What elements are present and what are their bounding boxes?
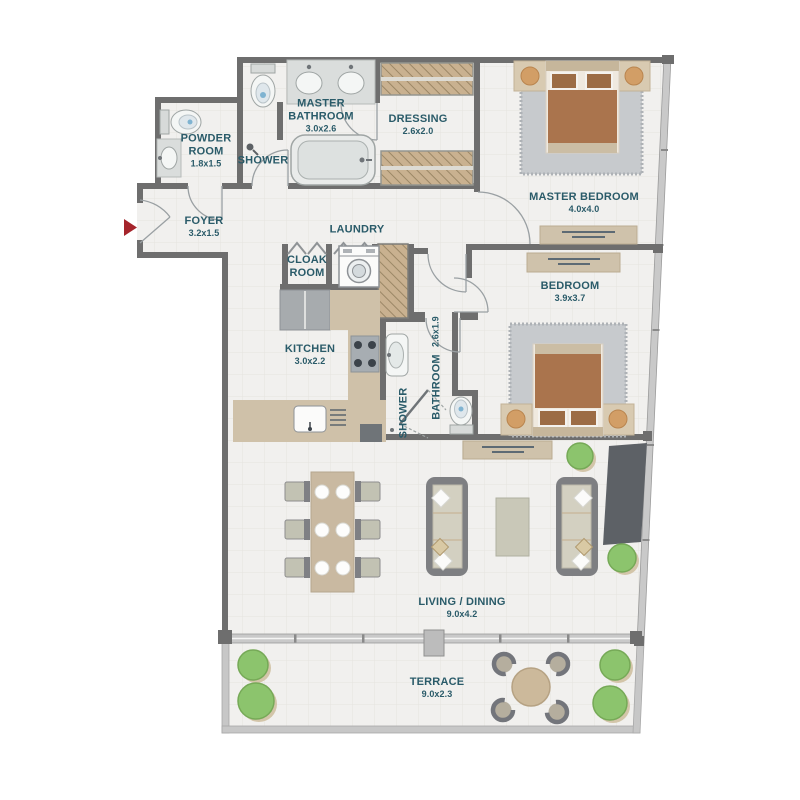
- room-name: BEDROOM: [541, 280, 600, 292]
- room-dims: 3.2x1.5: [164, 228, 244, 239]
- room-label-living-dining: LIVING / DINING 9.0x4.2: [392, 596, 532, 620]
- room-label-laundry: LAUNDRY: [317, 223, 397, 236]
- entry-arrow: [124, 219, 137, 236]
- room-label-terrace: TERRACE 9.0x2.3: [387, 676, 487, 700]
- room-label-bathroom: BATHROOM 2.6x1.9: [430, 316, 443, 420]
- room-name: LAUNDRY: [330, 223, 385, 235]
- room-dims: 9.0x4.2: [392, 609, 532, 620]
- room-name: MASTER BATHROOM: [288, 97, 354, 122]
- room-label-master-bathroom: MASTER BATHROOM 3.0x2.6: [278, 97, 364, 134]
- bathtub: [291, 135, 375, 185]
- coffee-table: [496, 498, 529, 556]
- room-name: FOYER: [185, 215, 224, 227]
- terrace-table: [512, 668, 550, 706]
- sideboard: [463, 441, 552, 459]
- room-name: MASTER BEDROOM: [529, 191, 639, 203]
- room-name: BATHROOM: [430, 354, 442, 420]
- toilet-master: [251, 64, 275, 107]
- duct-shaft: [378, 244, 408, 318]
- room-name: DRESSING: [388, 113, 447, 125]
- room-label-shower-bathroom: SHOWER: [397, 388, 410, 439]
- room-dims: 3.9x3.7: [520, 293, 620, 304]
- room-label-bedroom: BEDROOM 3.9x3.7: [520, 280, 620, 304]
- dining-table-set: [285, 472, 380, 592]
- terrace-door: [424, 630, 444, 656]
- room-name: SHOWER: [238, 154, 289, 166]
- room-name: SHOWER: [397, 388, 409, 439]
- room-name: KITCHEN: [285, 343, 335, 355]
- washing-machine: [339, 246, 379, 287]
- room-label-kitchen: KITCHEN 3.0x2.2: [270, 343, 350, 367]
- room-dims: 2.6x2.0: [370, 126, 466, 137]
- fridge: [280, 290, 330, 330]
- room-name: CLOAK ROOM: [287, 254, 327, 279]
- room-name: POWDER ROOM: [181, 132, 232, 157]
- bed-master: [546, 61, 619, 153]
- room-label-shower-master: SHOWER: [228, 154, 298, 167]
- tv-unit: [603, 443, 647, 545]
- stove: [351, 336, 379, 372]
- room-name: LIVING / DINING: [418, 596, 505, 608]
- room-dims: 4.0x4.0: [514, 204, 654, 215]
- room-name: TERRACE: [410, 676, 465, 688]
- bed-bedroom: [533, 344, 603, 436]
- room-dims: 9.0x2.3: [387, 689, 487, 700]
- room-label-master-bedroom: MASTER BEDROOM 4.0x4.0: [514, 191, 654, 215]
- sink-bathroom: [386, 334, 408, 376]
- dishwasher: [360, 424, 382, 442]
- room-dims: 3.0x2.6: [278, 124, 364, 135]
- room-label-cloak-room: CLOAK ROOM: [279, 254, 335, 280]
- toilet-powder: [160, 110, 201, 134]
- room-label-dressing: DRESSING 2.6x2.0: [370, 113, 466, 137]
- room-dims: 3.0x2.2: [270, 356, 350, 367]
- room-label-foyer: FOYER 3.2x1.5: [164, 215, 244, 239]
- floor-plan: POWDER ROOM 1.8x1.5 SHOWER MASTER BATHRO…: [0, 0, 800, 800]
- room-dims: 2.6x1.9: [430, 316, 441, 347]
- toilet-bathroom: [450, 397, 473, 434]
